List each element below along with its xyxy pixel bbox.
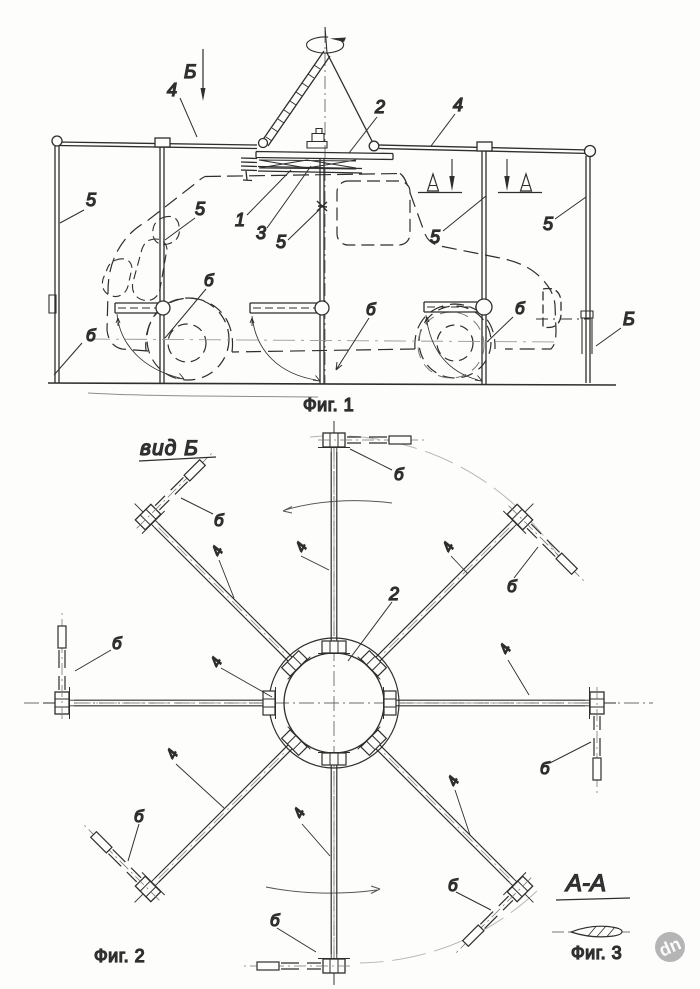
svg-text:4: 4 <box>163 747 182 762</box>
svg-text:б: б <box>112 634 123 653</box>
svg-text:4: 4 <box>167 80 177 100</box>
svg-text:б: б <box>270 911 281 930</box>
svg-text:4: 4 <box>496 642 515 657</box>
svg-text:4: 4 <box>453 95 463 115</box>
svg-text:4: 4 <box>208 544 227 559</box>
svg-text:4: 4 <box>444 774 463 789</box>
svg-text:б: б <box>134 807 145 826</box>
svg-text:1: 1 <box>235 210 245 230</box>
svg-text:Б: Б <box>623 309 635 329</box>
svg-text:б: б <box>204 271 215 290</box>
svg-text:б: б <box>86 326 97 345</box>
svg-text:5: 5 <box>195 199 206 219</box>
svg-text:Фиг. 2: Фиг. 2 <box>94 946 145 966</box>
svg-text:б: б <box>507 577 518 596</box>
svg-text:3: 3 <box>256 223 266 243</box>
svg-text:Фиг. 3: Фиг. 3 <box>571 943 622 963</box>
svg-text:4: 4 <box>290 806 309 821</box>
svg-text:б: б <box>515 299 526 318</box>
svg-text:5: 5 <box>430 227 441 247</box>
svg-text:5: 5 <box>276 232 287 252</box>
svg-text:Б: Б <box>184 62 196 83</box>
svg-text:б: б <box>366 300 377 319</box>
svg-text:4: 4 <box>439 540 458 555</box>
svg-text:б: б <box>214 511 225 530</box>
svg-text:5: 5 <box>86 190 97 210</box>
svg-text:2: 2 <box>374 97 385 117</box>
svg-text:4: 4 <box>207 655 226 670</box>
svg-text:б: б <box>540 759 551 778</box>
svg-text:вид Б: вид Б <box>140 437 199 460</box>
svg-text:4: 4 <box>292 540 311 555</box>
svg-text:А-А: А-А <box>564 870 606 897</box>
svg-text:б: б <box>394 465 405 484</box>
svg-text:Фиг. 1: Фиг. 1 <box>303 395 354 415</box>
svg-text:5: 5 <box>543 214 554 234</box>
svg-text:2: 2 <box>388 584 399 604</box>
